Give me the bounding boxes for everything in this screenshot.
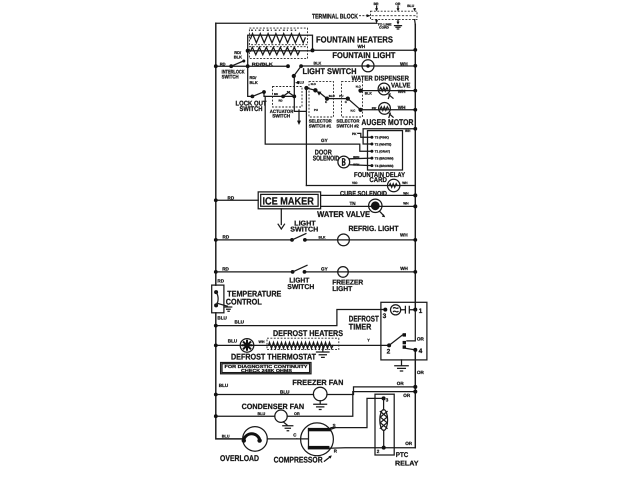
svg-text:BRN: BRN bbox=[353, 162, 359, 166]
svg-text:SWITCH: SWITCH bbox=[240, 106, 263, 113]
svg-text:WH: WH bbox=[400, 233, 408, 238]
svg-text:BLK: BLK bbox=[365, 91, 373, 95]
svg-text:BLU: BLU bbox=[228, 339, 238, 344]
svg-text:OR: OR bbox=[397, 381, 405, 386]
svg-text:FOUNTAIN HEATERS: FOUNTAIN HEATERS bbox=[316, 34, 393, 44]
svg-text:BLU: BLU bbox=[329, 94, 335, 98]
svg-text:PK: PK bbox=[352, 132, 357, 136]
svg-text:BLU: BLU bbox=[219, 383, 229, 388]
svg-text:GY: GY bbox=[321, 267, 328, 272]
svg-text:PU: PU bbox=[314, 108, 318, 112]
svg-text:RD/BLK: RD/BLK bbox=[252, 61, 273, 66]
svg-text:VIO: VIO bbox=[352, 181, 358, 185]
svg-text:REFRIG. LIGHT: REFRIG. LIGHT bbox=[349, 224, 399, 233]
svg-text:PK: PK bbox=[372, 106, 377, 110]
svg-text:T2 (WHITE): T2 (WHITE) bbox=[375, 142, 392, 146]
svg-text:BLK: BLK bbox=[319, 236, 327, 240]
svg-text:OR: OR bbox=[405, 441, 413, 446]
svg-text:T3 (PINK): T3 (PINK) bbox=[375, 136, 389, 140]
svg-text:TERMINAL BLOCK: TERMINAL BLOCK bbox=[312, 13, 358, 20]
svg-text:SWITCH: SWITCH bbox=[222, 75, 239, 81]
svg-text:DEFROST THERMOSTAT: DEFROST THERMOSTAT bbox=[231, 352, 316, 362]
svg-text:T1 (GRAY): T1 (GRAY) bbox=[375, 150, 390, 154]
svg-text:N.O: N.O bbox=[311, 82, 317, 86]
svg-text:WH: WH bbox=[400, 266, 408, 271]
svg-text:SWITCH: SWITCH bbox=[290, 227, 318, 234]
svg-text:1: 1 bbox=[419, 308, 423, 315]
svg-text:2: 2 bbox=[387, 348, 391, 355]
svg-text:WH: WH bbox=[405, 129, 411, 133]
svg-text:WH: WH bbox=[403, 202, 409, 206]
svg-text:CHECK 248K OHMS: CHECK 248K OHMS bbox=[241, 368, 292, 373]
svg-text:LIGHT SWITCH: LIGHT SWITCH bbox=[303, 67, 357, 76]
svg-text:3: 3 bbox=[383, 313, 387, 320]
svg-text:CONTROL: CONTROL bbox=[226, 298, 262, 307]
svg-text:RD: RD bbox=[223, 234, 230, 239]
svg-text:WH: WH bbox=[398, 105, 406, 110]
svg-text:WH: WH bbox=[402, 181, 408, 185]
svg-text:WH: WH bbox=[259, 340, 265, 344]
svg-text:FOUNTAIN LIGHT: FOUNTAIN LIGHT bbox=[332, 51, 395, 60]
svg-text:N.O: N.O bbox=[356, 84, 362, 88]
svg-text:GY: GY bbox=[321, 138, 328, 143]
svg-text:RD: RD bbox=[279, 98, 283, 102]
svg-text:WH: WH bbox=[398, 89, 406, 94]
svg-text:4: 4 bbox=[419, 348, 423, 355]
svg-text:SOLENOID: SOLENOID bbox=[313, 156, 340, 163]
svg-text:OVERLOAD: OVERLOAD bbox=[220, 453, 259, 463]
svg-text:RELAY: RELAY bbox=[395, 460, 419, 467]
svg-text:OR: OR bbox=[417, 370, 425, 375]
svg-text:CARD: CARD bbox=[369, 177, 387, 184]
svg-text:AUGER MOTOR: AUGER MOTOR bbox=[361, 117, 413, 127]
svg-text:TN: TN bbox=[350, 201, 357, 206]
svg-text:RD: RD bbox=[220, 62, 226, 67]
svg-text:3: 3 bbox=[386, 397, 389, 402]
svg-text:SWITCH: SWITCH bbox=[272, 114, 291, 120]
svg-text:DEFROST HEATERS: DEFROST HEATERS bbox=[273, 328, 343, 338]
svg-text:ICE MAKER: ICE MAKER bbox=[263, 197, 315, 208]
svg-text:CORD: CORD bbox=[379, 26, 390, 30]
svg-text:PTC: PTC bbox=[396, 452, 409, 459]
svg-text:SWITCH #2: SWITCH #2 bbox=[336, 123, 359, 128]
svg-text:WATER VALVE: WATER VALVE bbox=[317, 209, 370, 219]
svg-text:SWITCH #1: SWITCH #1 bbox=[309, 123, 332, 128]
svg-text:RD: RD bbox=[217, 279, 224, 284]
svg-text:OR: OR bbox=[294, 412, 300, 416]
svg-text:CUBE SOLENOID: CUBE SOLENOID bbox=[340, 190, 387, 197]
svg-text:RD: RD bbox=[228, 195, 235, 200]
svg-text:BLU: BLU bbox=[407, 4, 415, 8]
svg-text:BLU: BLU bbox=[217, 315, 227, 320]
svg-text:N.C: N.C bbox=[351, 109, 356, 113]
svg-text:LIGHT: LIGHT bbox=[332, 286, 353, 293]
svg-text:FREEZER FAN: FREEZER FAN bbox=[292, 378, 343, 387]
svg-text:COMPRESSOR: COMPRESSOR bbox=[274, 456, 323, 465]
svg-text:2: 2 bbox=[377, 449, 380, 454]
svg-text:BRN: BRN bbox=[353, 155, 359, 159]
svg-text:BLU: BLU bbox=[235, 319, 245, 324]
svg-text:RD: RD bbox=[222, 266, 229, 271]
svg-text:BLU: BLU bbox=[222, 435, 230, 439]
svg-text:TIMER: TIMER bbox=[349, 321, 372, 331]
svg-text:WH: WH bbox=[358, 44, 366, 49]
svg-text:OR: OR bbox=[403, 393, 411, 398]
svg-text:BLK: BLK bbox=[314, 62, 322, 66]
svg-text:Y: Y bbox=[367, 339, 370, 343]
svg-text:SWITCH: SWITCH bbox=[287, 284, 314, 291]
svg-text:WH: WH bbox=[400, 61, 408, 66]
svg-text:BLU: BLU bbox=[258, 412, 266, 416]
svg-text:BLK: BLK bbox=[234, 55, 242, 60]
svg-text:T4 (BROWN): T4 (BROWN) bbox=[375, 164, 394, 168]
svg-text:BK: BK bbox=[274, 92, 278, 96]
svg-text:WH: WH bbox=[403, 192, 409, 196]
svg-text:T3 (BROWN): T3 (BROWN) bbox=[375, 156, 394, 160]
svg-text:BLU: BLU bbox=[280, 390, 290, 395]
svg-text:OR: OR bbox=[417, 336, 425, 341]
svg-text:CONDENSER FAN: CONDENSER FAN bbox=[242, 402, 305, 411]
svg-text:BLK: BLK bbox=[250, 80, 258, 85]
